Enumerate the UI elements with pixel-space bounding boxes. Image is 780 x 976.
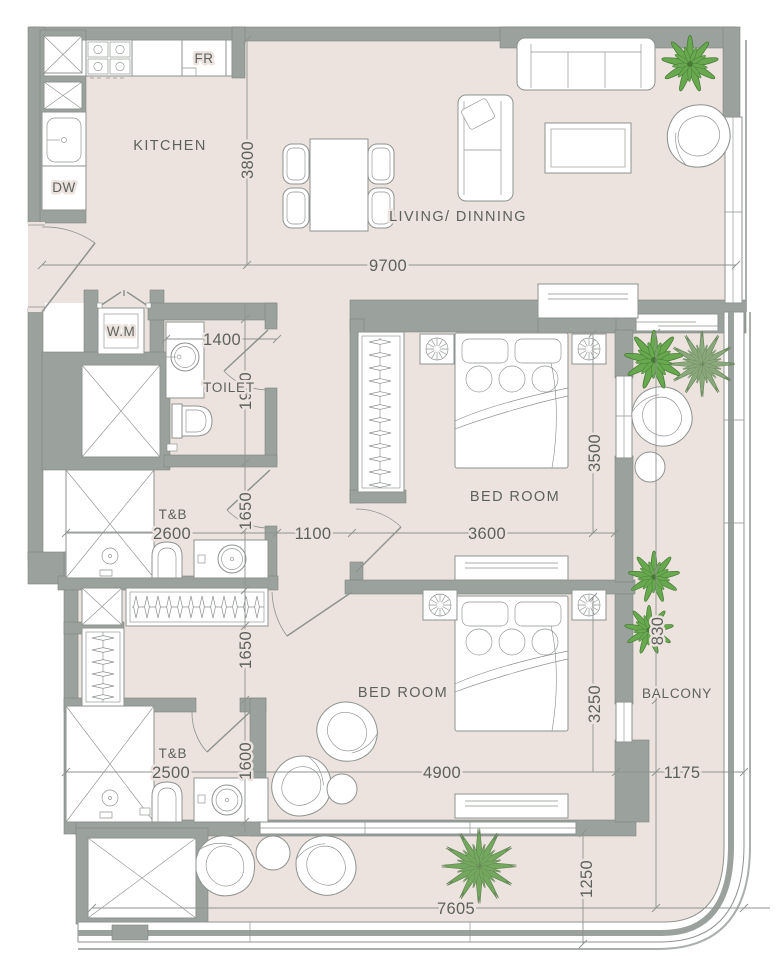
dim-balcony-upper: 830 <box>649 617 667 645</box>
wc <box>152 542 182 578</box>
floor-plan: 9700 3800 1400 1900 2600 1650 1100 3600 … <box>0 0 780 976</box>
dim-bedroom1-depth: 3500 <box>586 434 604 472</box>
console <box>455 556 568 580</box>
bed <box>455 333 568 468</box>
dim-balcony-width: 1175 <box>664 764 701 782</box>
loveseat <box>458 95 513 201</box>
ac-diffuser <box>423 590 457 620</box>
side-table <box>327 774 357 804</box>
balcony-table <box>635 452 665 482</box>
console <box>455 794 568 818</box>
label-washing-machine: W.M <box>107 324 136 339</box>
ac-diffuser <box>420 334 454 364</box>
balcony-table <box>256 836 290 870</box>
sofa <box>517 38 655 90</box>
label-dishwasher: DW <box>52 180 76 195</box>
dim-tb2-door: 1600 <box>237 742 255 780</box>
dining-chair <box>283 144 309 184</box>
dim-bedroom1-width: 3600 <box>468 525 506 543</box>
ac-diffuser <box>572 590 606 620</box>
dim-hall-width: 1100 <box>295 525 332 543</box>
floor-plan-page: 9700 3800 1400 1900 2600 1650 1100 3600 … <box>0 0 780 976</box>
dim-tb1-door: 1650 <box>237 492 255 530</box>
dim-living-width: 9700 <box>369 257 407 275</box>
coffee-table <box>545 123 631 173</box>
label-living-dining: LIVING/ DINNING <box>389 209 527 225</box>
railing-post <box>112 925 148 940</box>
label-tb2: T&B <box>159 746 188 761</box>
label-kitchen: KITCHEN <box>133 138 206 154</box>
bed <box>455 596 568 731</box>
dim-bedroom2-width: 4900 <box>423 764 461 782</box>
dim-bedroom2-depth: 3250 <box>586 685 604 723</box>
dim-tb1-width: 2600 <box>153 525 191 543</box>
armchair <box>667 105 730 167</box>
dim-tb2-width: 2500 <box>152 764 190 782</box>
kitchen-sink <box>42 112 86 166</box>
living-console <box>538 284 638 318</box>
dining-table <box>310 139 368 231</box>
dim-toilet-width: 1400 <box>203 331 241 349</box>
label-fridge: FR <box>195 51 214 66</box>
label-balcony: BALCONY <box>642 686 712 701</box>
label-bedroom1: BED ROOM <box>470 489 560 505</box>
dim-wardrobe-depth: 1650 <box>237 631 255 669</box>
label-tb1: T&B <box>159 507 188 522</box>
ac-diffuser <box>572 334 606 364</box>
living-balcony-slider <box>636 314 718 331</box>
dim-kitchen-depth: 3800 <box>239 141 257 179</box>
dining-chair <box>368 144 394 184</box>
label-bedroom2: BED ROOM <box>358 685 448 701</box>
label-toilet: TOILET <box>203 380 255 395</box>
dim-balcony-bottom-width: 7605 <box>437 900 475 918</box>
dining-chair <box>283 188 309 228</box>
dim-balcony-bottom-depth: 1250 <box>578 860 596 898</box>
entry-opening <box>28 222 45 312</box>
